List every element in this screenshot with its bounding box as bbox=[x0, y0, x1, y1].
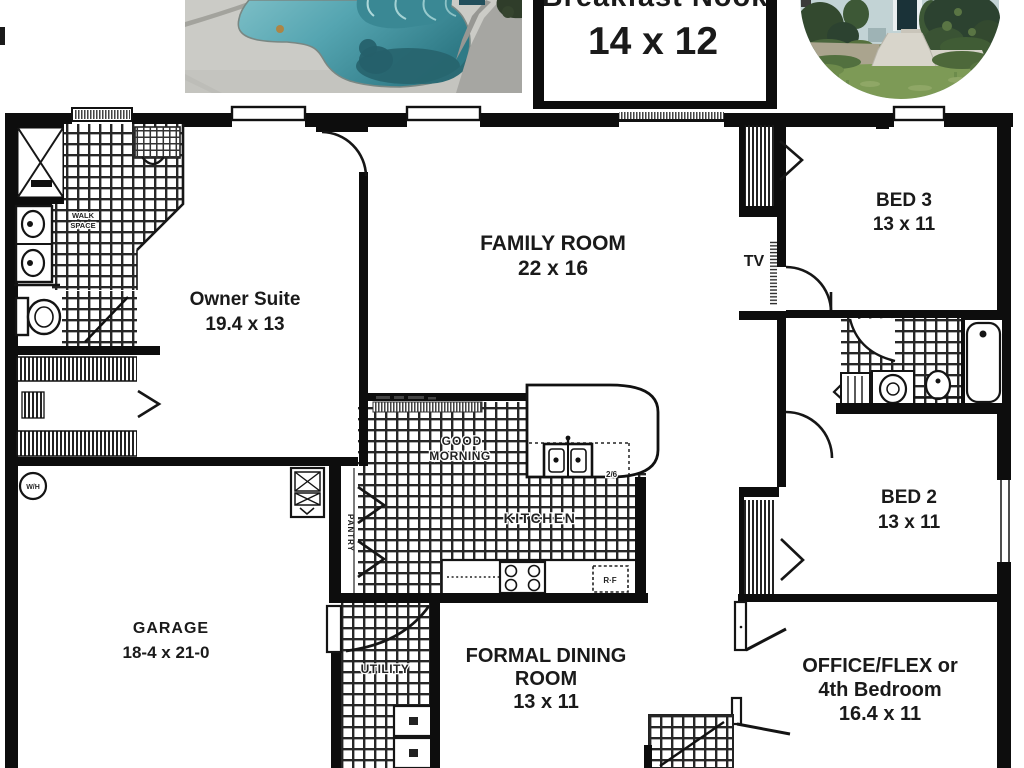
svg-text:Breakfast Nook: Breakfast Nook bbox=[542, 0, 769, 13]
svg-text:GARAGE: GARAGE bbox=[133, 620, 209, 637]
svg-text:16.4 x 11: 16.4 x 11 bbox=[839, 703, 921, 725]
svg-text:13 x 11: 13 x 11 bbox=[873, 214, 936, 235]
svg-text:TV: TV bbox=[744, 253, 765, 270]
svg-text:14 x 12: 14 x 12 bbox=[588, 20, 718, 63]
svg-text:KITCHEN: KITCHEN bbox=[504, 510, 577, 526]
svg-text:MORNING: MORNING bbox=[429, 449, 491, 463]
svg-text:R·F: R·F bbox=[603, 576, 616, 585]
svg-text:UTILITY: UTILITY bbox=[361, 662, 410, 676]
svg-text:22 x 16: 22 x 16 bbox=[518, 257, 588, 280]
svg-text:SPACE: SPACE bbox=[70, 221, 95, 230]
svg-text:13 x 11: 13 x 11 bbox=[878, 512, 941, 533]
svg-text:Owner Suite: Owner Suite bbox=[190, 289, 301, 310]
svg-text:ROOM: ROOM bbox=[515, 668, 577, 690]
svg-text:FAMILY ROOM: FAMILY ROOM bbox=[480, 232, 626, 255]
svg-text:BED 2: BED 2 bbox=[881, 487, 937, 508]
svg-text:BED 3: BED 3 bbox=[876, 190, 932, 211]
svg-text:18-4 x 21-0: 18-4 x 21-0 bbox=[123, 643, 210, 662]
svg-text:2/6: 2/6 bbox=[606, 470, 618, 479]
svg-text:4th Bedroom: 4th Bedroom bbox=[818, 679, 941, 701]
svg-text:W/H: W/H bbox=[26, 484, 40, 491]
svg-text:19.4 x 13: 19.4 x 13 bbox=[205, 314, 284, 335]
svg-text:13 x 11: 13 x 11 bbox=[513, 691, 579, 713]
svg-text:OFFICE/FLEX or: OFFICE/FLEX or bbox=[802, 655, 958, 677]
svg-text:FORMAL DINING: FORMAL DINING bbox=[466, 645, 627, 667]
svg-text:WALK: WALK bbox=[72, 211, 95, 220]
svg-text:GOOD: GOOD bbox=[442, 434, 483, 448]
